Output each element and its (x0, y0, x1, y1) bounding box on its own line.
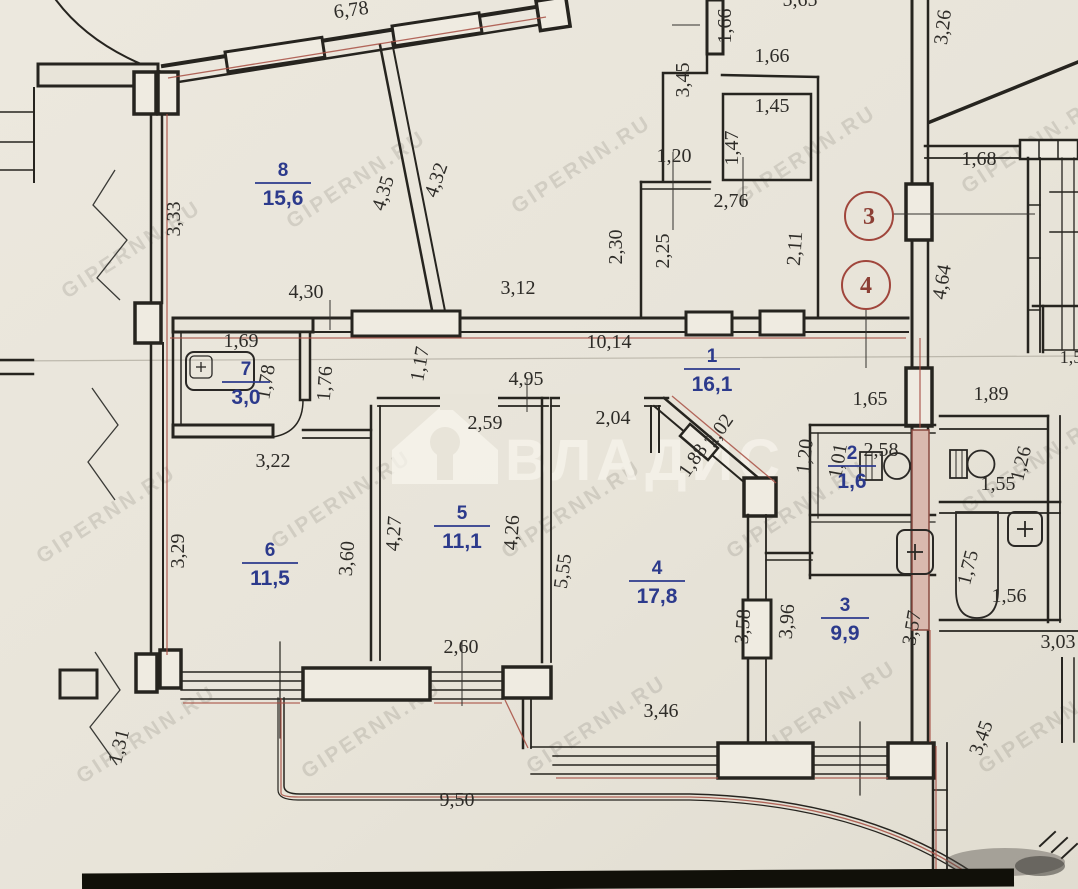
dimension-label: 3,96 (775, 603, 799, 639)
room-number: 4 (652, 558, 663, 579)
wall-pillar (906, 368, 932, 426)
window (1020, 140, 1078, 159)
dimension-label: 2,76 (714, 190, 749, 212)
dimension-label: 2,30 (605, 230, 627, 265)
dimension-label: 2,59 (468, 412, 503, 434)
wall-pillar (136, 654, 157, 692)
dimension-label: 1,5 (1060, 347, 1078, 367)
dimension-label: 10,14 (587, 331, 632, 353)
wall-pillar (888, 743, 934, 778)
wall-pillar (158, 72, 178, 114)
dimension-label: 1,66 (714, 9, 736, 44)
dimension-label: 1,56 (992, 585, 1027, 607)
dimension-label: 4,30 (289, 281, 324, 303)
room-number: 3 (840, 595, 851, 616)
dimension-label: 2,58 (864, 439, 899, 461)
wall-pillar (503, 667, 551, 698)
dimension-label: 3,60 (335, 540, 359, 576)
callout-number: 3 (863, 204, 875, 230)
wall-pillar (686, 312, 732, 335)
wall-pillar (744, 478, 776, 516)
wall-pillar (718, 743, 813, 778)
dimension-label: 3,03 (1041, 631, 1076, 653)
dimension-label: 1,65 (853, 388, 888, 410)
dimension-label: 3,45 (672, 63, 694, 98)
dimension-label: 1,66 (755, 45, 790, 67)
dimension-label: 2,11 (783, 231, 807, 267)
dimension-label: 3,58 (731, 608, 755, 644)
wall-pillar (536, 0, 570, 31)
room-number: 1 (707, 346, 718, 367)
room-number: 7 (241, 359, 252, 380)
dimension-label: 3,46 (644, 700, 679, 722)
wall-pillar (160, 650, 181, 688)
dimension-label: 2,04 (596, 407, 631, 429)
floor-plan-svg: GIPERNN.RUGIPERNN.RUGIPERNN.RUGIPERNN.RU… (0, 0, 1078, 889)
dimension-label: 2,60 (444, 636, 479, 658)
dimension-label: 1,68 (962, 148, 997, 170)
dimension-label: 3,22 (256, 450, 291, 472)
room-area: 17,8 (637, 585, 678, 608)
dimension-label: 3,33 (163, 202, 185, 237)
window (352, 311, 460, 336)
room-area: 11,5 (250, 567, 290, 590)
dimension-label: 4,27 (382, 515, 406, 551)
dimension-label: 4,26 (500, 514, 524, 550)
room-number: 2 (847, 443, 858, 464)
room-area: 16,1 (692, 373, 733, 396)
wall-pillar (134, 72, 156, 114)
dimension-label: 3,26 (930, 9, 956, 46)
dimension-label: 2,25 (652, 234, 674, 269)
room-area: 11,1 (442, 530, 482, 553)
dimension-label: 1,47 (721, 131, 743, 166)
balcony-door (303, 668, 430, 700)
dimension-label: 1,20 (657, 145, 692, 167)
dimension-label: 1,20 (792, 438, 818, 475)
wall-pillar (135, 303, 161, 343)
dimension-label: 3,12 (501, 277, 536, 299)
room-area: 9,9 (830, 622, 859, 645)
dimension-label: 1,89 (974, 383, 1009, 405)
dimension-label: 3,29 (167, 534, 189, 569)
room-number: 5 (457, 503, 468, 524)
room-area: 1,6 (837, 470, 866, 493)
room-area: 15,6 (263, 187, 304, 210)
dimension-label: 9,50 (440, 789, 475, 811)
wall-pillar (906, 184, 932, 240)
dimension-label: 1,45 (755, 95, 790, 117)
dimension-label: 1,69 (224, 330, 259, 352)
wall-pillar (760, 311, 804, 335)
room-number: 6 (265, 540, 276, 561)
callout-number: 4 (860, 273, 872, 299)
room-number: 8 (278, 160, 289, 181)
dimension-label: 4,95 (509, 368, 544, 390)
dimension-label: 1,76 (313, 365, 337, 401)
room-area: 3,0 (231, 386, 260, 409)
floor-plan-scan: GIPERNN.RUGIPERNN.RUGIPERNN.RUGIPERNN.RU… (0, 0, 1078, 889)
dimension-label: 5,65 (783, 0, 818, 11)
scan-smudge (1015, 856, 1065, 876)
